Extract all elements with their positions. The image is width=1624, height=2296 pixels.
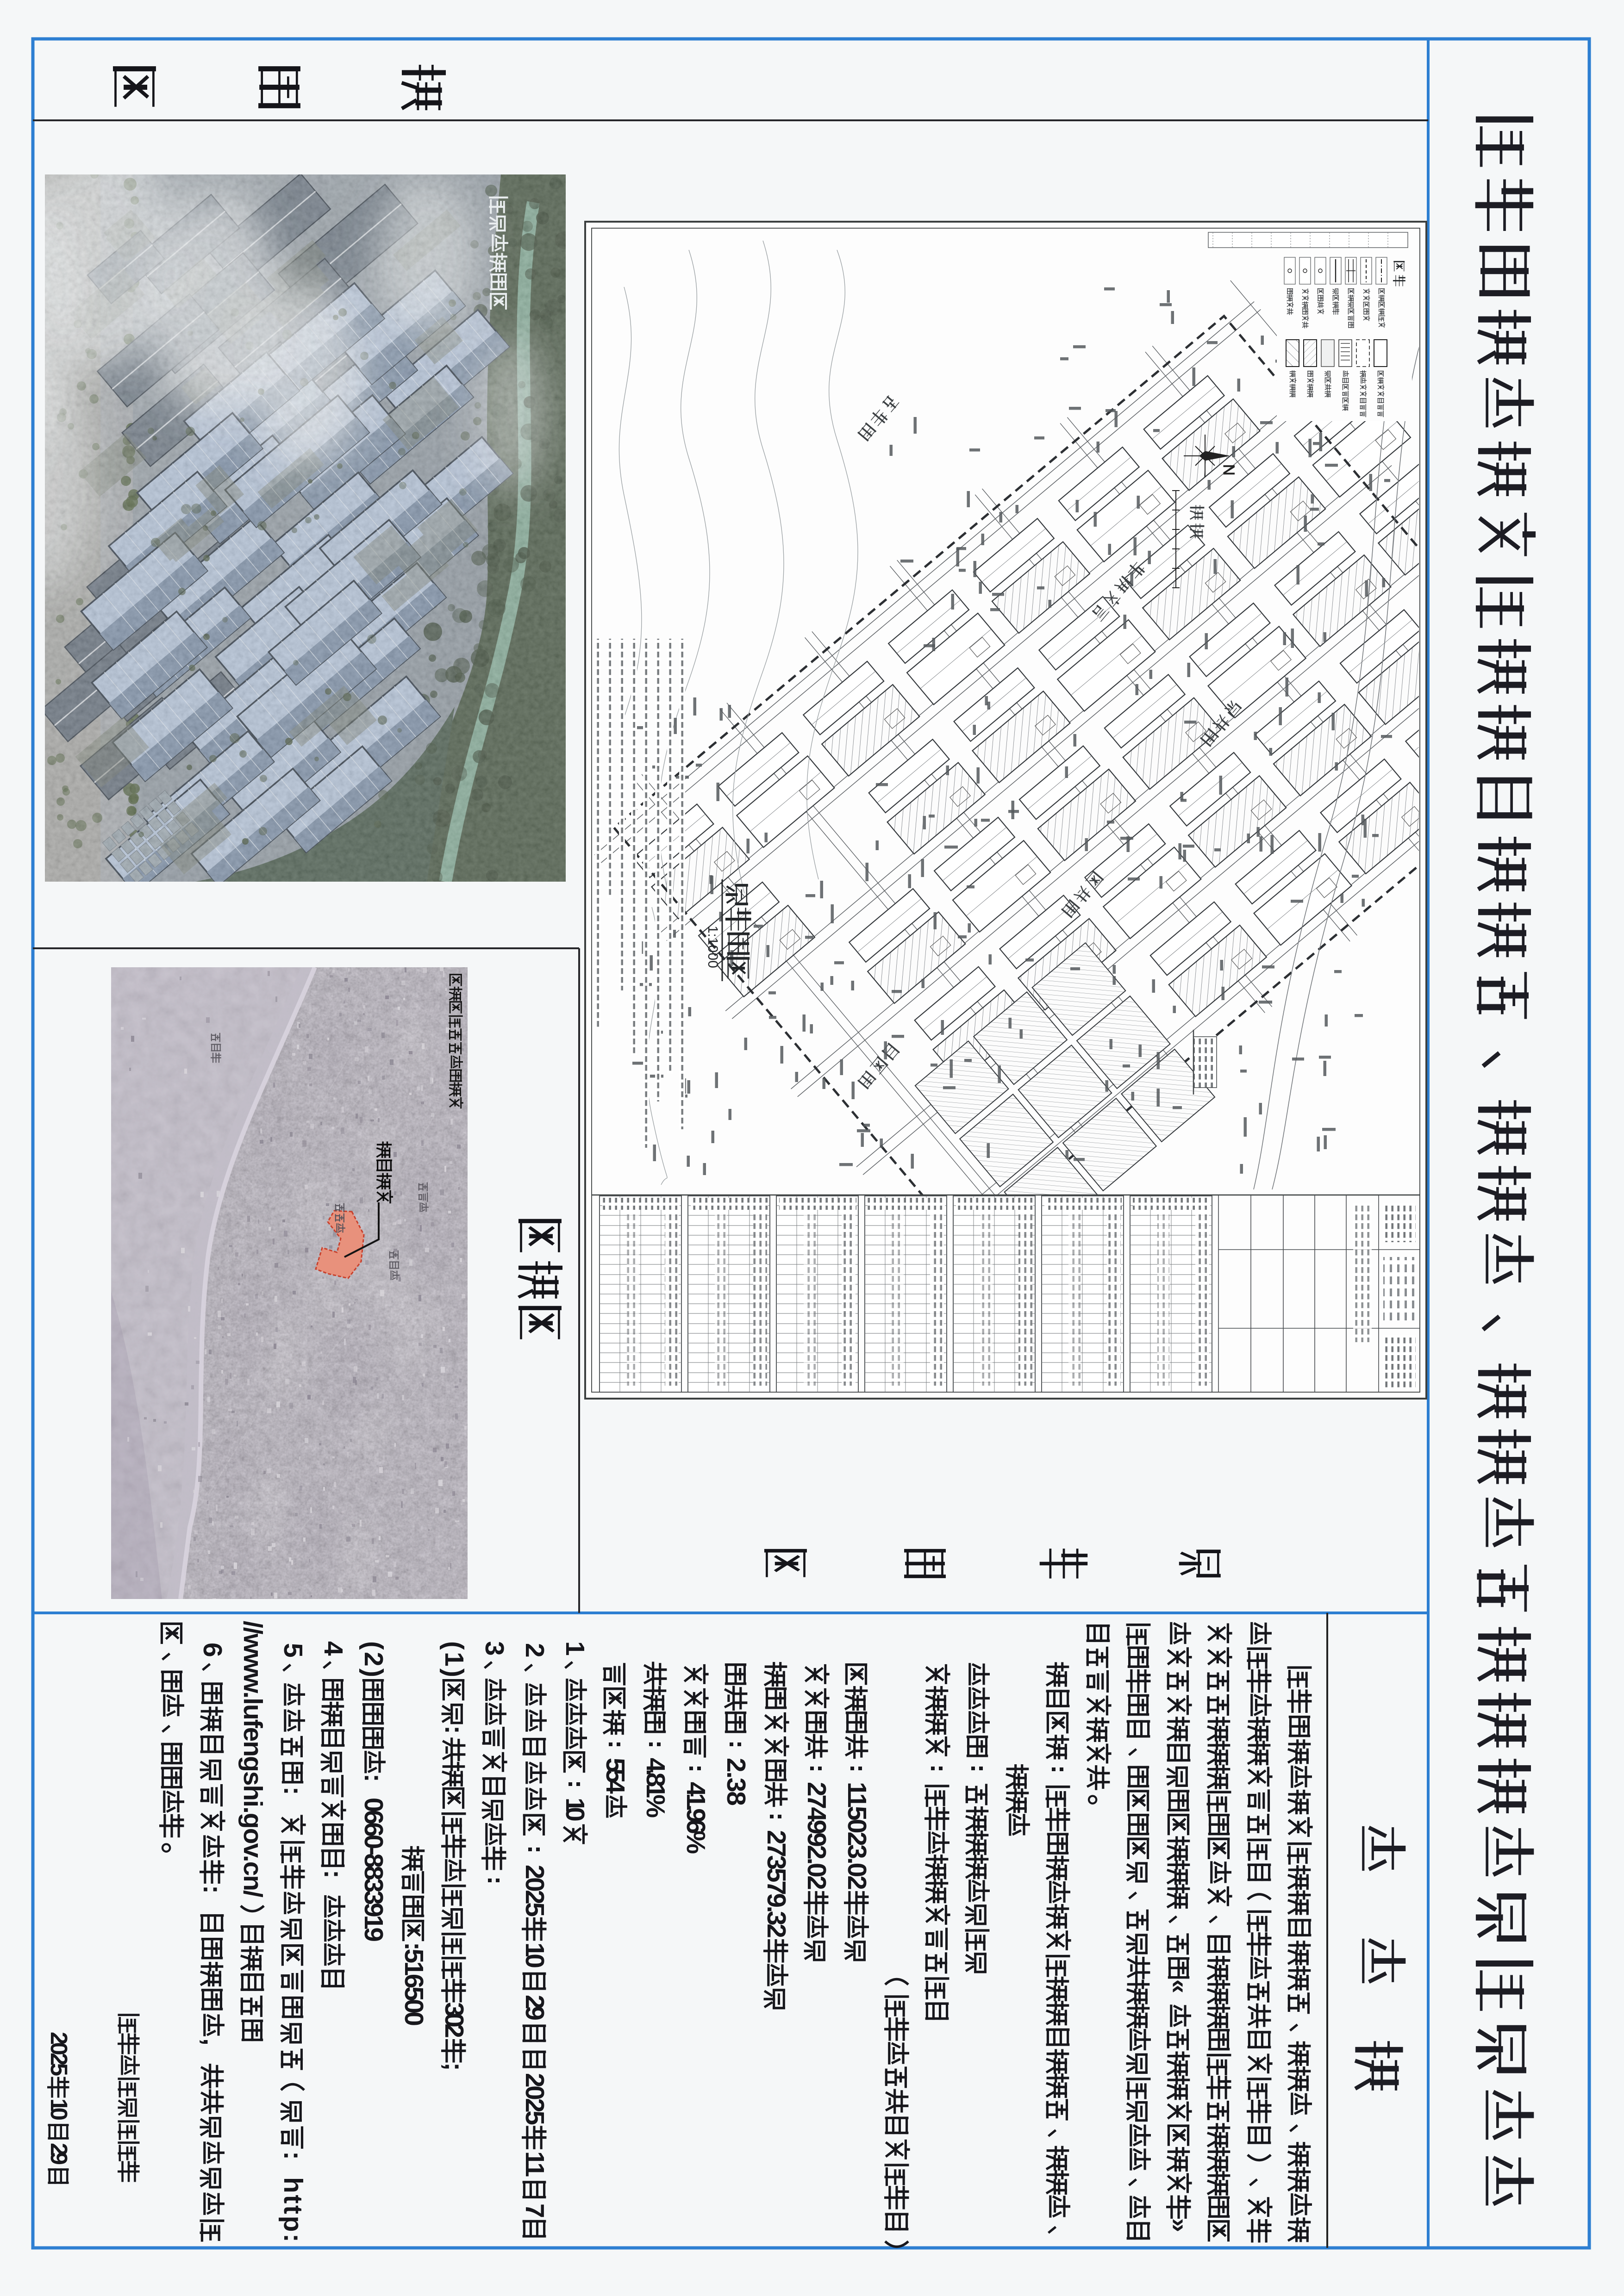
svg-text:(2): (2) (359, 1641, 388, 1677)
svg-text:0660-8833919: 0660-8833919 (359, 1798, 388, 1942)
svg-text:10: 10 (46, 2098, 72, 2121)
svg-text:302: 302 (439, 2002, 469, 2038)
svg-text:1:1000: 1:1000 (705, 926, 720, 968)
svg-text:7: 7 (520, 2203, 550, 2218)
svg-text:554: 554 (600, 1758, 630, 1794)
svg-text:11: 11 (520, 2151, 550, 2177)
svg-text:,: , (198, 2038, 227, 2046)
svg-text:(1): (1) (439, 1641, 469, 1677)
svg-text:;: ; (439, 2062, 469, 2071)
svg-text:2025: 2025 (520, 2073, 550, 2125)
svg-text::: : (278, 2151, 308, 2160)
svg-text:3: 3 (480, 1641, 509, 1656)
svg-text:»: » (1166, 2218, 1193, 2232)
svg-text:273579.32: 273579.32 (762, 1830, 791, 1938)
svg-text:10: 10 (560, 1798, 590, 1822)
svg-text:10: 10 (520, 1942, 550, 1968)
svg-text:29: 29 (46, 2143, 72, 2165)
svg-text::516500: :516500 (399, 1942, 429, 2026)
svg-text:2.38: 2.38 (721, 1758, 751, 1806)
svg-text:41.96%: 41.96% (681, 1782, 711, 1854)
svg-text:6: 6 (198, 1643, 227, 1657)
svg-text::: : (359, 1773, 388, 1782)
svg-text:4: 4 (319, 1641, 348, 1656)
svg-text:«: « (1166, 1979, 1193, 1993)
svg-text:2: 2 (520, 1643, 550, 1658)
svg-text:2025: 2025 (520, 1865, 550, 1917)
svg-text::: : (319, 1870, 348, 1879)
svg-text::: : (278, 1786, 308, 1795)
svg-text:1: 1 (560, 1641, 590, 1656)
svg-text:29: 29 (520, 1995, 550, 2021)
svg-text:115023.02: 115023.02 (842, 1782, 872, 1890)
svg-text:2025: 2025 (46, 2032, 72, 2076)
svg-text:4.81%: 4.81% (641, 1758, 670, 1818)
svg-text::: : (198, 1885, 227, 1894)
svg-text:N: N (1220, 464, 1237, 476)
svg-text:274992.02: 274992.02 (802, 1782, 831, 1890)
svg-text://www.lufengshi.gov.cn/: //www.lufengshi.gov.cn/ (238, 1621, 268, 1898)
svg-text:5: 5 (278, 1643, 308, 1658)
svg-text::: : (439, 1725, 469, 1734)
